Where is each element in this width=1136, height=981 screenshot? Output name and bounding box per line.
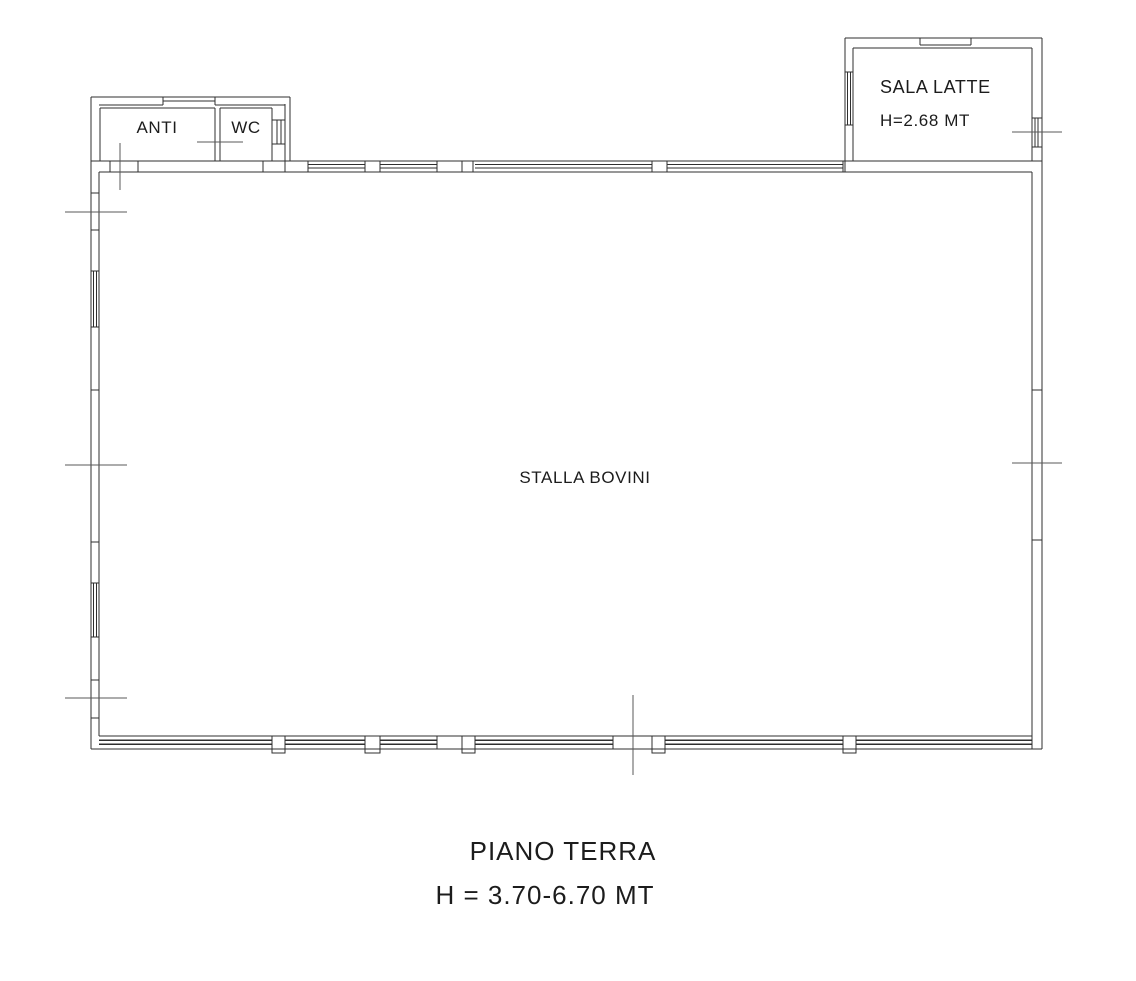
floor-plan-page: ANTI WC SALA LATTE H=2.68 MT STALLA BOVI… bbox=[0, 0, 1136, 981]
room-label-stalla-bovini: STALLA BOVINI bbox=[519, 468, 650, 487]
main-exterior-walls bbox=[91, 38, 1042, 749]
room-height-sala-latte: H=2.68 MT bbox=[880, 111, 970, 130]
floor-plan-drawing: ANTI WC SALA LATTE H=2.68 MT STALLA BOVI… bbox=[0, 0, 1136, 981]
caption-floor-title: PIANO TERRA bbox=[470, 836, 657, 866]
room-label-wc: WC bbox=[231, 118, 261, 137]
bottom-wall-window-symbols bbox=[99, 736, 1032, 753]
right-wall-segment-marks bbox=[1032, 390, 1042, 540]
top-wall-window-symbols bbox=[110, 161, 843, 172]
sala-latte-walls bbox=[845, 38, 1042, 172]
axis-tick-marks bbox=[65, 132, 1062, 775]
room-label-sala-latte: SALA LATTE bbox=[880, 77, 991, 97]
left-wall-window-symbols bbox=[91, 193, 99, 718]
caption-floor-height: H = 3.70-6.70 MT bbox=[435, 880, 654, 910]
room-label-anti: ANTI bbox=[136, 118, 177, 137]
